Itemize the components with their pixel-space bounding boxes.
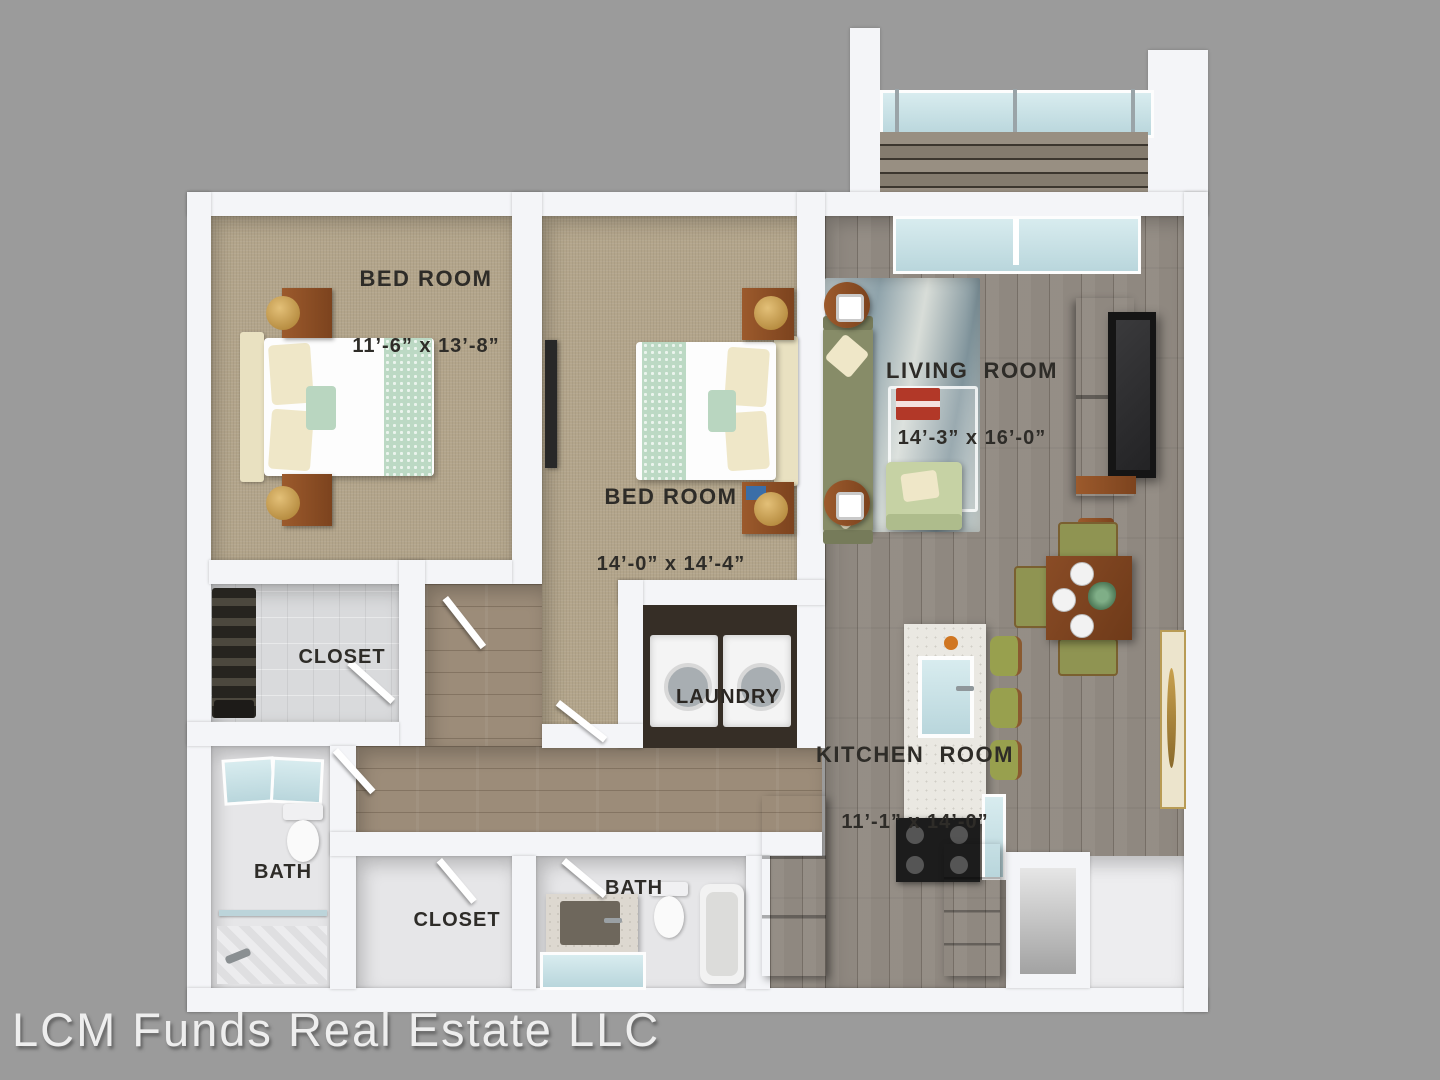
balcony-glass-railing — [880, 90, 1154, 138]
vanity-sink — [560, 901, 620, 945]
wall-bed1-bed2 — [512, 192, 542, 584]
wall-bed1-bottom — [209, 560, 512, 584]
dryer — [723, 635, 791, 727]
shower-grab-bar — [219, 910, 327, 916]
wall-hall-bottom — [330, 832, 822, 856]
dining-chair-top — [1058, 522, 1118, 560]
living-tv — [1108, 312, 1156, 478]
bedroom2-dims: 14’-0” x 14’-4” — [597, 554, 745, 574]
bath-left-mirror — [270, 757, 324, 806]
wall-bath-left-right — [330, 746, 356, 989]
bedroom1-name: BED ROOM — [352, 268, 499, 290]
closet-bottom-label: CLOSET — [413, 910, 500, 930]
bathtub-basin — [706, 892, 738, 976]
wall-bed2-living — [797, 192, 825, 748]
laundry-label: LAUNDRY — [676, 687, 780, 707]
closet-top-clothes-rack — [212, 588, 256, 718]
bedroom2-name: BED ROOM — [597, 486, 745, 508]
balcony-deck — [880, 132, 1148, 194]
toilet-bowl — [287, 820, 319, 862]
armchair-back — [886, 514, 962, 530]
wall-art-motif — [1167, 668, 1176, 768]
bedroom1-dims: 11’-6” x 13’-8” — [352, 336, 499, 356]
floor-plan-canvas: BED ROOM 11’-6” x 13’-8” BED ROOM 14’-0”… — [0, 0, 1440, 1080]
watermark-text: LCM Funds Real Estate LLC — [12, 1002, 660, 1057]
wall-bath-left-top — [187, 722, 399, 746]
bar-stool — [990, 636, 1022, 676]
bedroom2-label: BED ROOM 14’-0” x 14’-4” — [597, 454, 745, 606]
living-room-label: LIVING ROOM 14’-3” x 16’-0” — [886, 328, 1058, 480]
outer-wall-left — [187, 192, 211, 1012]
outer-wall-top — [187, 192, 1208, 216]
bed2-headboard — [774, 336, 798, 486]
railing-post — [1131, 89, 1135, 137]
wall-closet-top-right — [399, 560, 425, 746]
balcony-left-wall — [850, 28, 880, 194]
dining-plate — [1052, 588, 1076, 612]
patio-glass-door — [893, 216, 1141, 274]
kitchen-dims: 11’-1” x 14’-0” — [816, 812, 1014, 832]
dining-wall-cabinet — [1076, 476, 1136, 494]
bathtub — [700, 884, 744, 984]
bath-left-label: BATH — [254, 862, 312, 882]
bedroom1-label: BED ROOM 11’-6” x 13’-8” — [352, 236, 499, 388]
bed1-accent-pillow — [306, 386, 336, 430]
kitchen-name: KITCHEN ROOM — [816, 744, 1014, 766]
wall-closet-bath-divider — [512, 856, 536, 989]
living-room-dims: 14’-3” x 16’-0” — [886, 428, 1058, 448]
laundry-nook — [643, 605, 797, 748]
dining-plate — [1070, 614, 1094, 638]
balcony-right-wall — [1148, 50, 1208, 194]
hall-floor-upper — [425, 584, 542, 746]
toilet-bowl — [654, 896, 684, 938]
vanity-faucet — [604, 918, 622, 923]
bed1-headboard — [240, 332, 264, 482]
side-table-lamp — [836, 492, 864, 520]
bed2-lamp-bottom — [754, 492, 788, 526]
vanity-counter — [546, 894, 638, 952]
fruit-bowl — [944, 636, 958, 650]
bath-middle-glass-panel — [540, 952, 646, 990]
railing-post — [895, 89, 899, 137]
bath-left-mirror — [221, 756, 276, 806]
bath-middle-label: BATH — [605, 878, 663, 898]
railing-post — [1013, 89, 1017, 137]
side-table-lamp — [836, 294, 864, 322]
washer — [650, 635, 718, 727]
closet-top-label: CLOSET — [298, 647, 385, 667]
dining-chair-bottom — [1058, 638, 1118, 676]
bed1-lamp-bottom — [266, 486, 300, 520]
bed2-accent-pillow — [708, 390, 736, 432]
closet-top-shoes — [214, 700, 254, 718]
bath-middle-fixtures — [536, 856, 746, 989]
door-mullion — [1013, 219, 1019, 265]
bed2-wall-tv — [545, 340, 557, 468]
bed1-lamp-top — [266, 296, 300, 330]
sofa-arm — [823, 530, 873, 544]
living-room-name: LIVING ROOM — [886, 360, 1058, 382]
entry-niche-opening — [1020, 868, 1076, 974]
bed2-lamp-top — [754, 296, 788, 330]
toilet-tank — [283, 804, 323, 820]
kitchen-faucet — [956, 686, 974, 691]
tv-screen — [1116, 320, 1150, 470]
dining-plate — [1070, 562, 1094, 586]
kitchen-label: KITCHEN ROOM 11’-1” x 14’-0” — [816, 712, 1014, 864]
wall-entry-niche — [1006, 852, 1090, 988]
wall-art-frame — [1160, 630, 1186, 809]
